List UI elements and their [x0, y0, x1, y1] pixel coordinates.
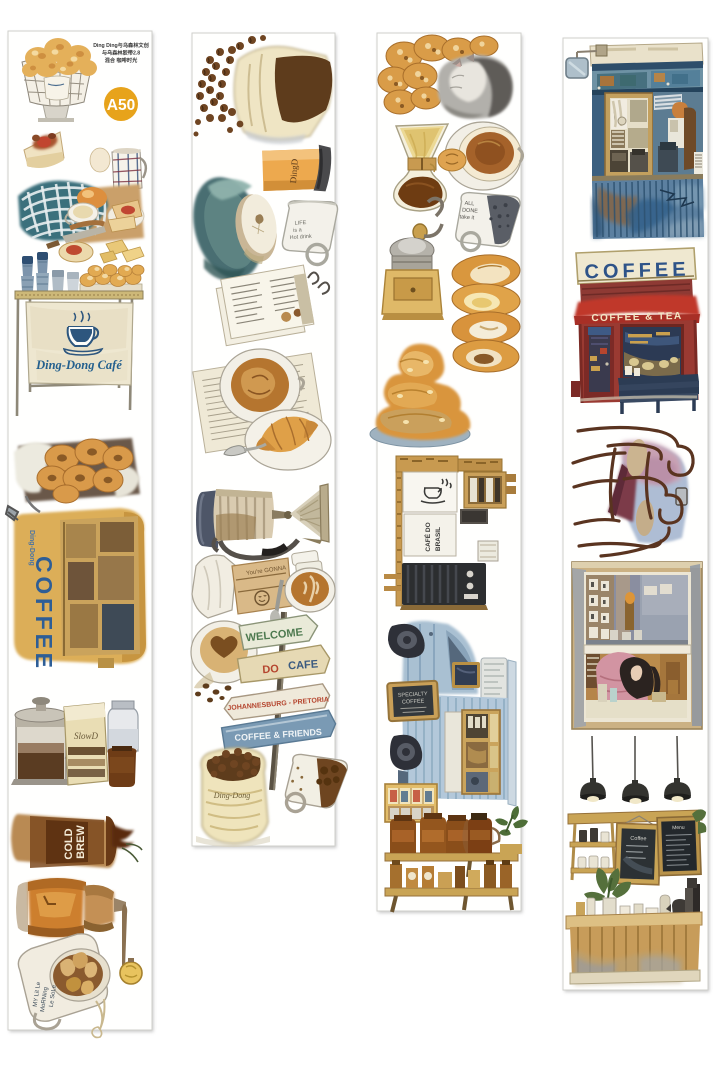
svg-text:LIFE: LIFE — [294, 220, 306, 227]
svg-text:BREW: BREW — [75, 825, 87, 859]
svg-text:DingD: DingD — [288, 158, 300, 184]
svg-text:DONE: DONE — [462, 207, 479, 214]
svg-text:混合 咖啡时光: 混合 咖啡时光 — [105, 56, 138, 64]
svg-text:COFFEE: COFFEE — [402, 698, 425, 705]
svg-text:A50: A50 — [107, 97, 135, 114]
svg-text:DO: DO — [262, 663, 280, 676]
svg-text:Ding-Dong: Ding-Dong — [28, 530, 35, 566]
svg-text:take it: take it — [459, 214, 475, 221]
svg-text:与乌森林胶带2.8: 与乌森林胶带2.8 — [102, 49, 140, 57]
svg-text:CAFÉ DO: CAFÉ DO — [423, 522, 432, 551]
svg-text:SlowD: SlowD — [74, 731, 99, 741]
svg-text:Ding Ding与乌森林文创: Ding Ding与乌森林文创 — [93, 41, 149, 49]
svg-text:Ding-Dong Café: Ding-Dong Café — [35, 358, 122, 372]
svg-text:Menu: Menu — [672, 825, 685, 831]
svg-text:Coffee: Coffee — [630, 836, 646, 843]
svg-text:COFFEE: COFFEE — [584, 259, 690, 284]
svg-text:COLD: COLD — [63, 828, 75, 859]
svg-text:BRASIL: BRASIL — [435, 527, 442, 551]
svg-text:ALL: ALL — [464, 201, 474, 208]
svg-text:CAFE: CAFE — [288, 658, 319, 672]
svg-text:is a: is a — [293, 227, 303, 234]
svg-text:Ding-Dong: Ding-Dong — [213, 791, 250, 800]
